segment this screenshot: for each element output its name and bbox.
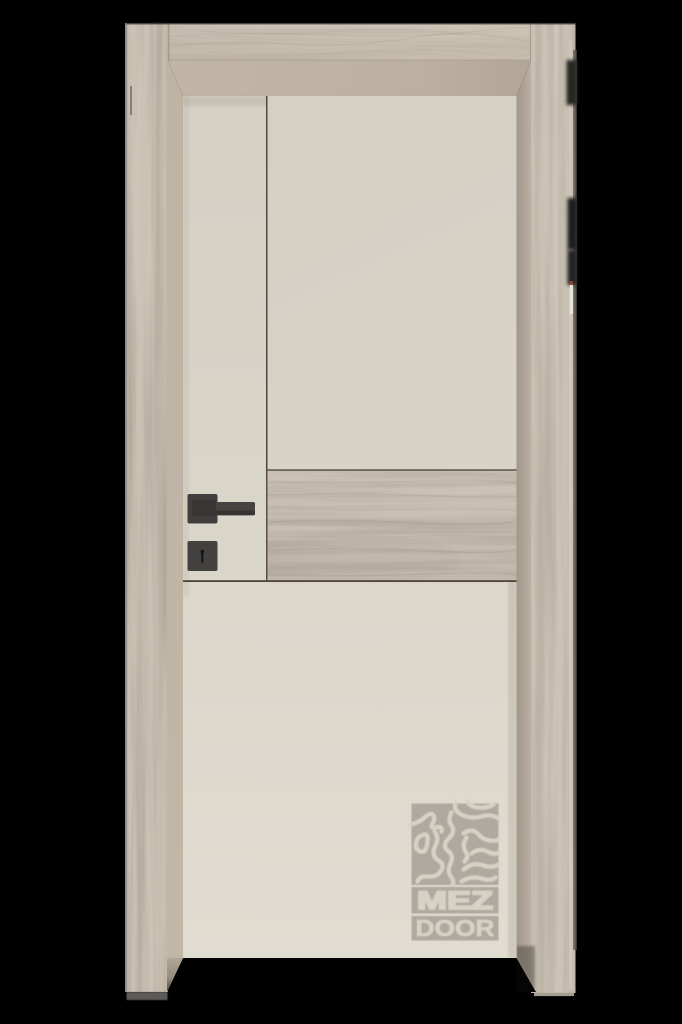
svg-text:MEZ: MEZ (417, 887, 493, 915)
svg-text:DOOR: DOOR (416, 915, 495, 941)
